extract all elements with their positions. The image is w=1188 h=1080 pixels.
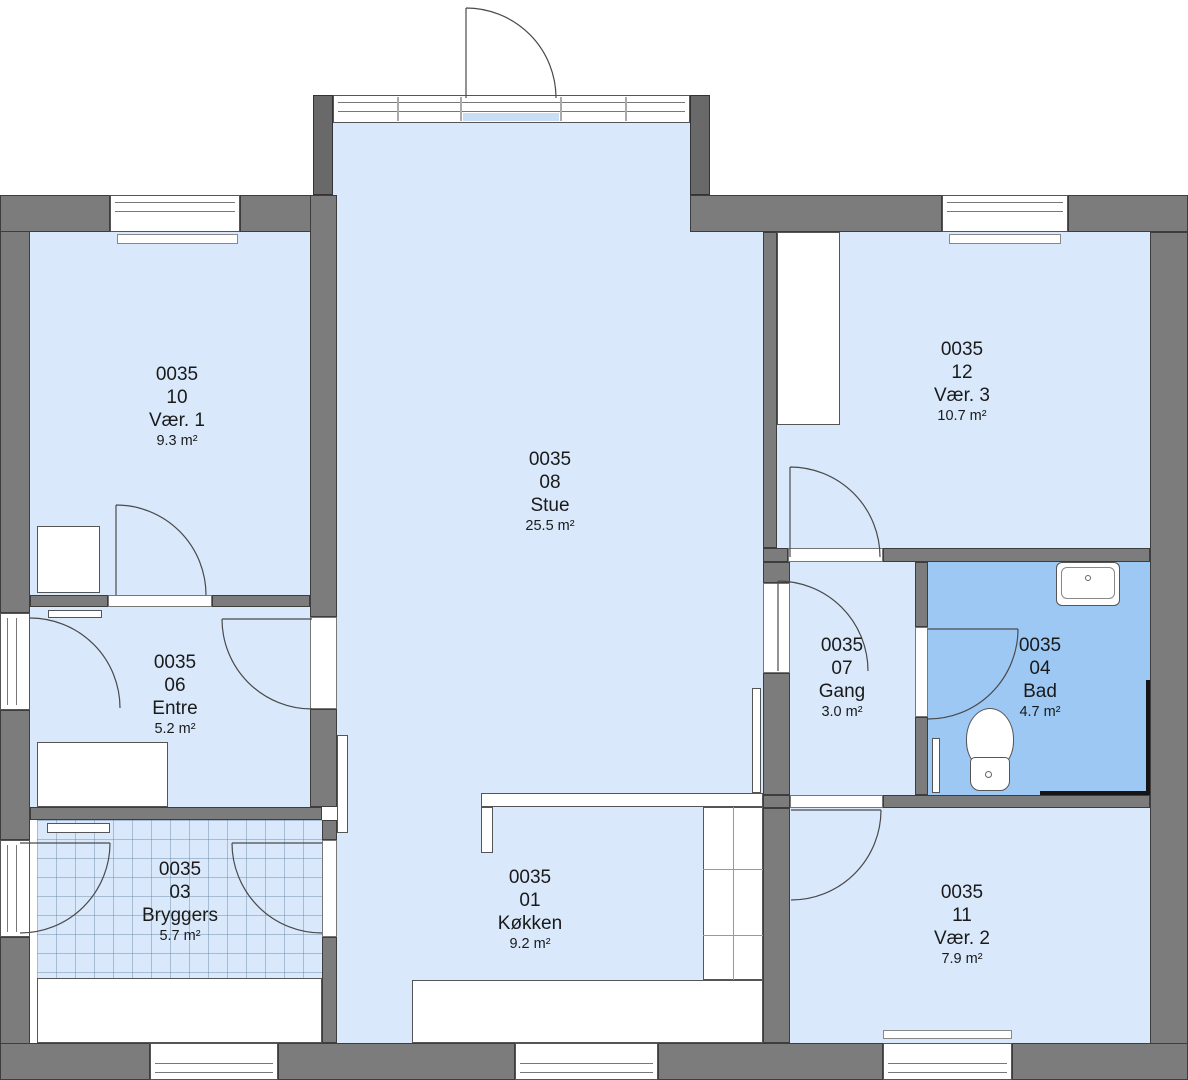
shower-screen (932, 738, 940, 793)
wall-segment (322, 937, 337, 1043)
room-id: 0035 (87, 363, 267, 386)
bad-wall-edge (1040, 791, 1150, 795)
stue-wall-panel (337, 735, 348, 833)
bryggers-side-door-frame (0, 840, 30, 937)
patio-door-threshold (463, 113, 559, 121)
room-name: Bad (950, 680, 1130, 703)
room-name: Køkken (440, 912, 620, 935)
room-number: 12 (872, 361, 1052, 384)
wall-segment (763, 232, 777, 548)
room-label-stue: 0035 08 Stue 25.5 m² (460, 448, 640, 536)
door-frame-entre-stue (310, 617, 337, 709)
window-sill-vaer3 (949, 234, 1061, 244)
wall-segment (30, 595, 108, 607)
bay-corner-post (690, 95, 710, 195)
room-id: 0035 (872, 881, 1052, 904)
room-number: 03 (90, 881, 270, 904)
wall-segment (322, 820, 337, 840)
room-label-entre: 0035 06 Entre 5.2 m² (85, 651, 265, 739)
room-label-koekken: 0035 01 Køkken 9.2 m² (440, 866, 620, 954)
cabinet-divider (733, 807, 734, 980)
wall-segment (30, 807, 322, 820)
room-area: 3.0 m² (752, 703, 932, 722)
room-label-bryggers: 0035 03 Bryggers 5.7 m² (90, 858, 270, 946)
room-number: 10 (87, 386, 267, 409)
room-name: Vær. 2 (872, 927, 1052, 950)
wall-segment (1012, 1043, 1188, 1080)
toilet-drain (985, 771, 992, 778)
room-id: 0035 (752, 634, 932, 657)
window-mullion (397, 97, 399, 121)
wall-segment (0, 710, 30, 840)
koekken-counter-top (481, 793, 763, 807)
room-label-vaer2: 0035 11 Vær. 2 7.9 m² (872, 881, 1052, 969)
bryggers-radiator (47, 823, 110, 833)
wall-segment (763, 548, 788, 562)
wall-segment (915, 717, 928, 795)
vaer1-closet (37, 526, 100, 593)
wall-segment (310, 195, 337, 617)
patio-door-swing (466, 8, 556, 98)
vaer3-wardrobe (777, 232, 840, 425)
window-rail (115, 202, 235, 212)
room-area: 5.2 m² (85, 720, 265, 739)
room-area: 5.7 m² (90, 927, 270, 946)
room-number: 07 (752, 657, 932, 680)
room-area: 10.7 m² (872, 407, 1052, 426)
koekken-counter (412, 980, 763, 1043)
bay-window-band (333, 95, 690, 123)
wall-segment (883, 795, 1150, 808)
room-label-vaer1: 0035 10 Vær. 1 9.3 m² (87, 363, 267, 451)
entre-closet (37, 742, 168, 807)
room-label-vaer3: 0035 12 Vær. 3 10.7 m² (872, 338, 1052, 426)
wall-segment (1068, 195, 1188, 232)
bay-corner-post (313, 95, 333, 195)
window-rail (338, 102, 685, 112)
room-id: 0035 (872, 338, 1052, 361)
wall-segment (763, 795, 790, 808)
window-rail (888, 1063, 1007, 1073)
room-area: 9.3 m² (87, 432, 267, 451)
wall-segment (212, 595, 310, 607)
room-floor-stue-upper (337, 195, 690, 232)
window-rail (155, 1063, 273, 1073)
bad-wall-edge (1146, 680, 1150, 793)
window-bryggers (150, 1043, 278, 1080)
room-id: 0035 (440, 866, 620, 889)
bathroom-sink (1056, 562, 1120, 606)
room-id: 0035 (85, 651, 265, 674)
window-rail (947, 202, 1063, 212)
entrance-door-frame (0, 613, 30, 710)
room-label-gang: 0035 07 Gang 3.0 m² (752, 634, 932, 722)
wall-segment (240, 195, 313, 232)
wall-segment (763, 808, 790, 1043)
room-number: 08 (460, 471, 640, 494)
window-rail (7, 618, 17, 705)
wall-segment (0, 195, 110, 232)
entre-radiator (48, 610, 102, 618)
window-mullion (560, 97, 562, 121)
window-rail (520, 1063, 653, 1073)
window-koekken (515, 1043, 658, 1080)
room-name: Bryggers (90, 904, 270, 927)
window-vaer2 (883, 1043, 1012, 1080)
door-frame-vaer2 (790, 795, 883, 808)
room-area: 25.5 m² (460, 517, 640, 536)
wall-segment (763, 562, 790, 583)
room-area: 7.9 m² (872, 950, 1052, 969)
room-number: 04 (950, 657, 1130, 680)
window-sill-vaer1 (117, 234, 238, 244)
room-name: Stue (460, 494, 640, 517)
wall-segment (0, 1043, 150, 1080)
wall-segment (0, 195, 30, 613)
wall-segment (278, 1043, 515, 1080)
room-name: Vær. 3 (872, 384, 1052, 407)
room-name: Vær. 1 (87, 409, 267, 432)
room-name: Entre (85, 697, 265, 720)
window-mullion (625, 97, 627, 121)
door-frame-bryggers-koekken (322, 840, 337, 937)
room-number: 11 (872, 904, 1052, 927)
wall-segment (1150, 232, 1188, 1080)
window-mullion (460, 97, 462, 121)
sink-drain (1085, 575, 1091, 581)
room-area: 4.7 m² (950, 703, 1130, 722)
wall-segment (690, 195, 942, 232)
window-sill-vaer2 (883, 1030, 1012, 1039)
window-rail (7, 845, 17, 932)
wall-segment (883, 548, 1150, 562)
room-label-bad: 0035 04 Bad 4.7 m² (950, 634, 1130, 722)
window-vaer1 (110, 195, 240, 232)
bryggers-counter (37, 978, 322, 1043)
door-frame-vaer3 (788, 548, 883, 562)
room-name: Gang (752, 680, 932, 703)
floor-plan: 0035 10 Vær. 1 9.3 m² 0035 08 Stue 25.5 … (0, 0, 1188, 1080)
wall-segment (310, 709, 337, 807)
room-number: 06 (85, 674, 265, 697)
door-frame-vaer1 (108, 595, 212, 607)
sink-basin (1061, 567, 1115, 599)
room-number: 01 (440, 889, 620, 912)
wall-segment (915, 562, 928, 627)
window-vaer3 (942, 195, 1068, 232)
room-id: 0035 (950, 634, 1130, 657)
wall-segment (658, 1043, 883, 1080)
room-id: 0035 (460, 448, 640, 471)
room-area: 9.2 m² (440, 935, 620, 954)
room-id: 0035 (90, 858, 270, 881)
koekken-counter-return (481, 807, 493, 853)
